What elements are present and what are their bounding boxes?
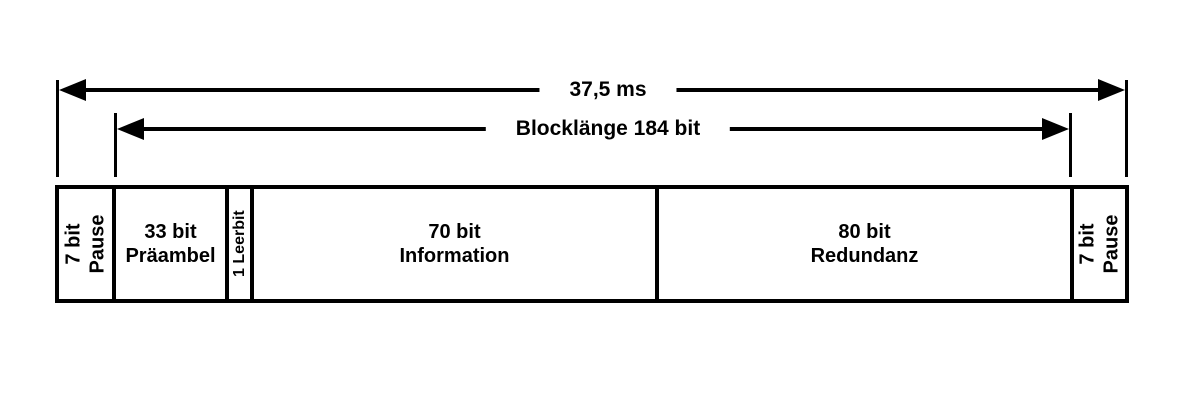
block-span-end-tick <box>1069 113 1072 177</box>
frame-bar: 7 bit Pause 33 bit Präambel 1 Leerbit 70… <box>55 185 1129 303</box>
segment-label-line: Präambel <box>125 244 215 268</box>
segment-label-line: Pause <box>86 215 110 274</box>
segment-preamble: 33 bit Präambel <box>112 189 225 299</box>
segment-information-label: 70 bit Information <box>400 220 510 268</box>
total-arrowhead-left-icon <box>59 79 86 101</box>
segment-label-line: 7 bit <box>1076 215 1100 274</box>
segment-pause-left-label: 7 bit Pause <box>62 215 110 274</box>
segment-label-line: Pause <box>1100 215 1124 274</box>
segment-pause-right-label: 7 bit Pause <box>1076 215 1124 274</box>
segment-label-line: Information <box>400 244 510 268</box>
segment-label-line: 70 bit <box>400 220 510 244</box>
segment-pause-left: 7 bit Pause <box>59 189 112 299</box>
segment-information: 70 bit Information <box>250 189 655 299</box>
total-span-end-tick <box>1125 80 1128 177</box>
segment-spacer-bit: 1 Leerbit <box>225 189 250 299</box>
segment-label-line: 7 bit <box>62 215 86 274</box>
block-arrowhead-left-icon <box>117 118 144 140</box>
total-duration-label: 37,5 ms <box>539 77 676 103</box>
segment-label-line: 33 bit <box>125 220 215 244</box>
segment-label-line: 80 bit <box>811 220 919 244</box>
segment-label-line: Redundanz <box>811 244 919 268</box>
segment-spacer-bit-label: 1 Leerbit <box>230 211 249 278</box>
total-arrowhead-right-icon <box>1098 79 1125 101</box>
block-arrowhead-right-icon <box>1042 118 1069 140</box>
segment-redundancy-label: 80 bit Redundanz <box>811 220 919 268</box>
block-length-label: Blocklänge 184 bit <box>486 116 730 142</box>
segment-label-line: 1 Leerbit <box>230 211 249 278</box>
frame-structure-diagram: 37,5 ms Blocklänge 184 bit 7 bit Pause 3… <box>0 0 1200 400</box>
segment-redundancy: 80 bit Redundanz <box>655 189 1070 299</box>
segment-preamble-label: 33 bit Präambel <box>125 220 215 268</box>
segment-pause-right: 7 bit Pause <box>1070 189 1125 299</box>
